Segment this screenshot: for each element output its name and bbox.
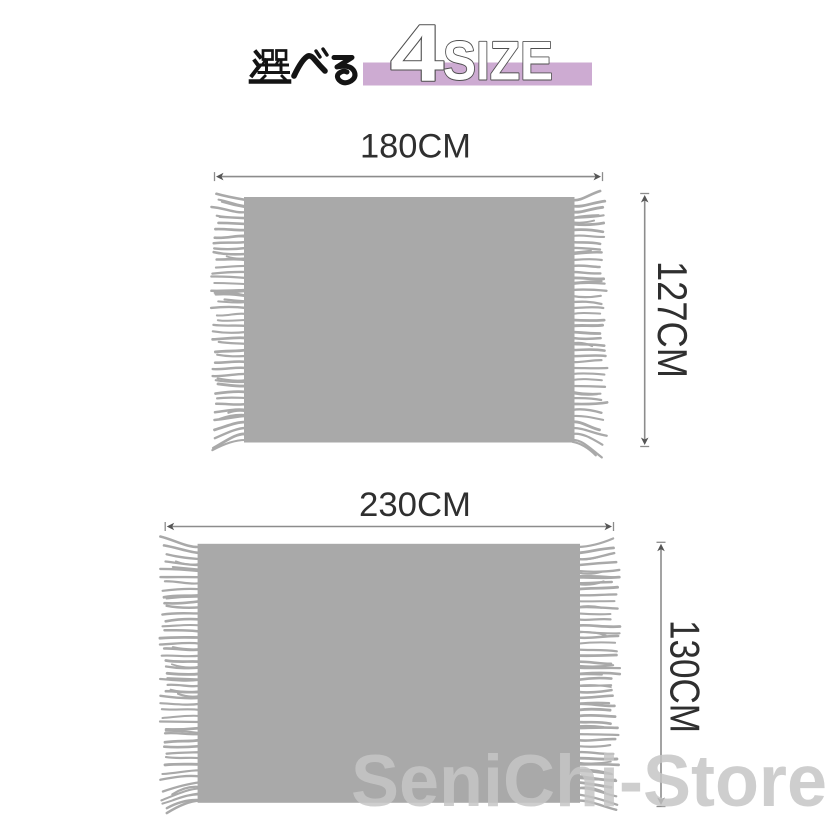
svg-text:230CM: 230CM [359, 486, 471, 524]
svg-text:SIZE: SIZE [443, 30, 553, 92]
svg-text:SeniChi-Store: SeniChi-Store [351, 741, 827, 822]
svg-text:4: 4 [390, 9, 444, 99]
svg-text:130CM: 130CM [662, 620, 709, 733]
svg-text:127CM: 127CM [649, 261, 696, 378]
svg-text:180CM: 180CM [360, 128, 471, 166]
